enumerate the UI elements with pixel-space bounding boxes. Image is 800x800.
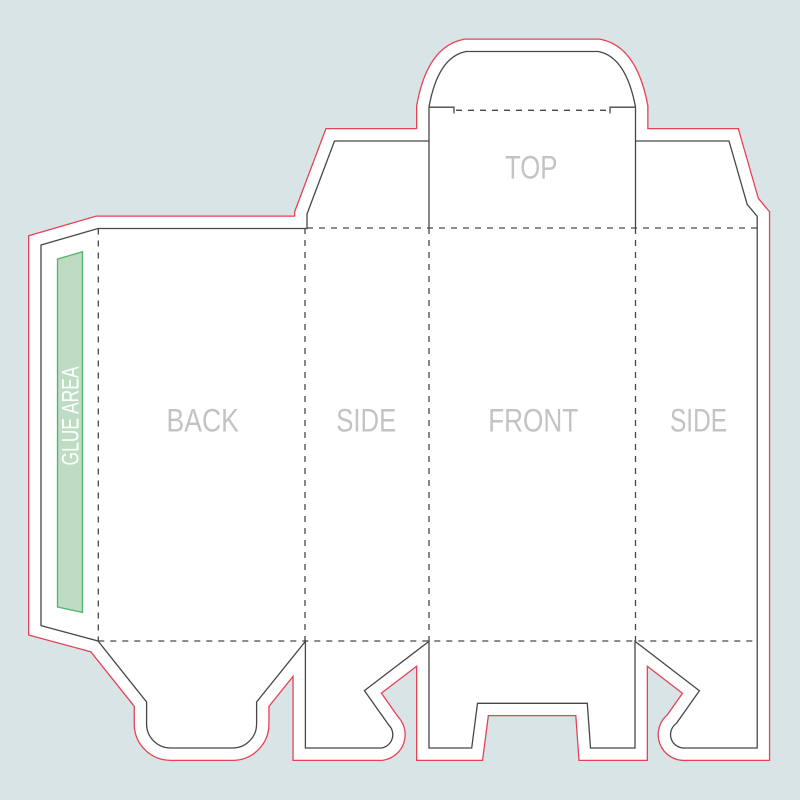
- svg-text:TOP: TOP: [505, 149, 558, 185]
- svg-text:SIDE: SIDE: [336, 403, 396, 439]
- svg-text:GLUE AREA: GLUE AREA: [57, 366, 84, 466]
- svg-text:FRONT: FRONT: [488, 403, 578, 439]
- svg-text:BACK: BACK: [167, 403, 239, 439]
- svg-text:SIDE: SIDE: [670, 403, 727, 439]
